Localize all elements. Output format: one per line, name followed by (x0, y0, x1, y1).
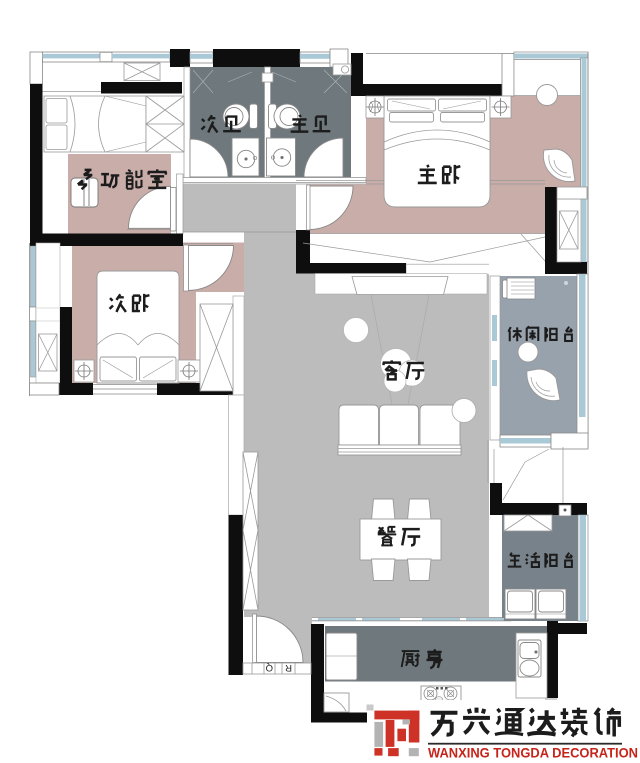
svg-text:R: R (285, 662, 292, 673)
svg-text:Q: Q (266, 662, 273, 673)
svg-text:WANXING TONGDA DECORATION: WANXING TONGDA DECORATION (428, 746, 638, 762)
